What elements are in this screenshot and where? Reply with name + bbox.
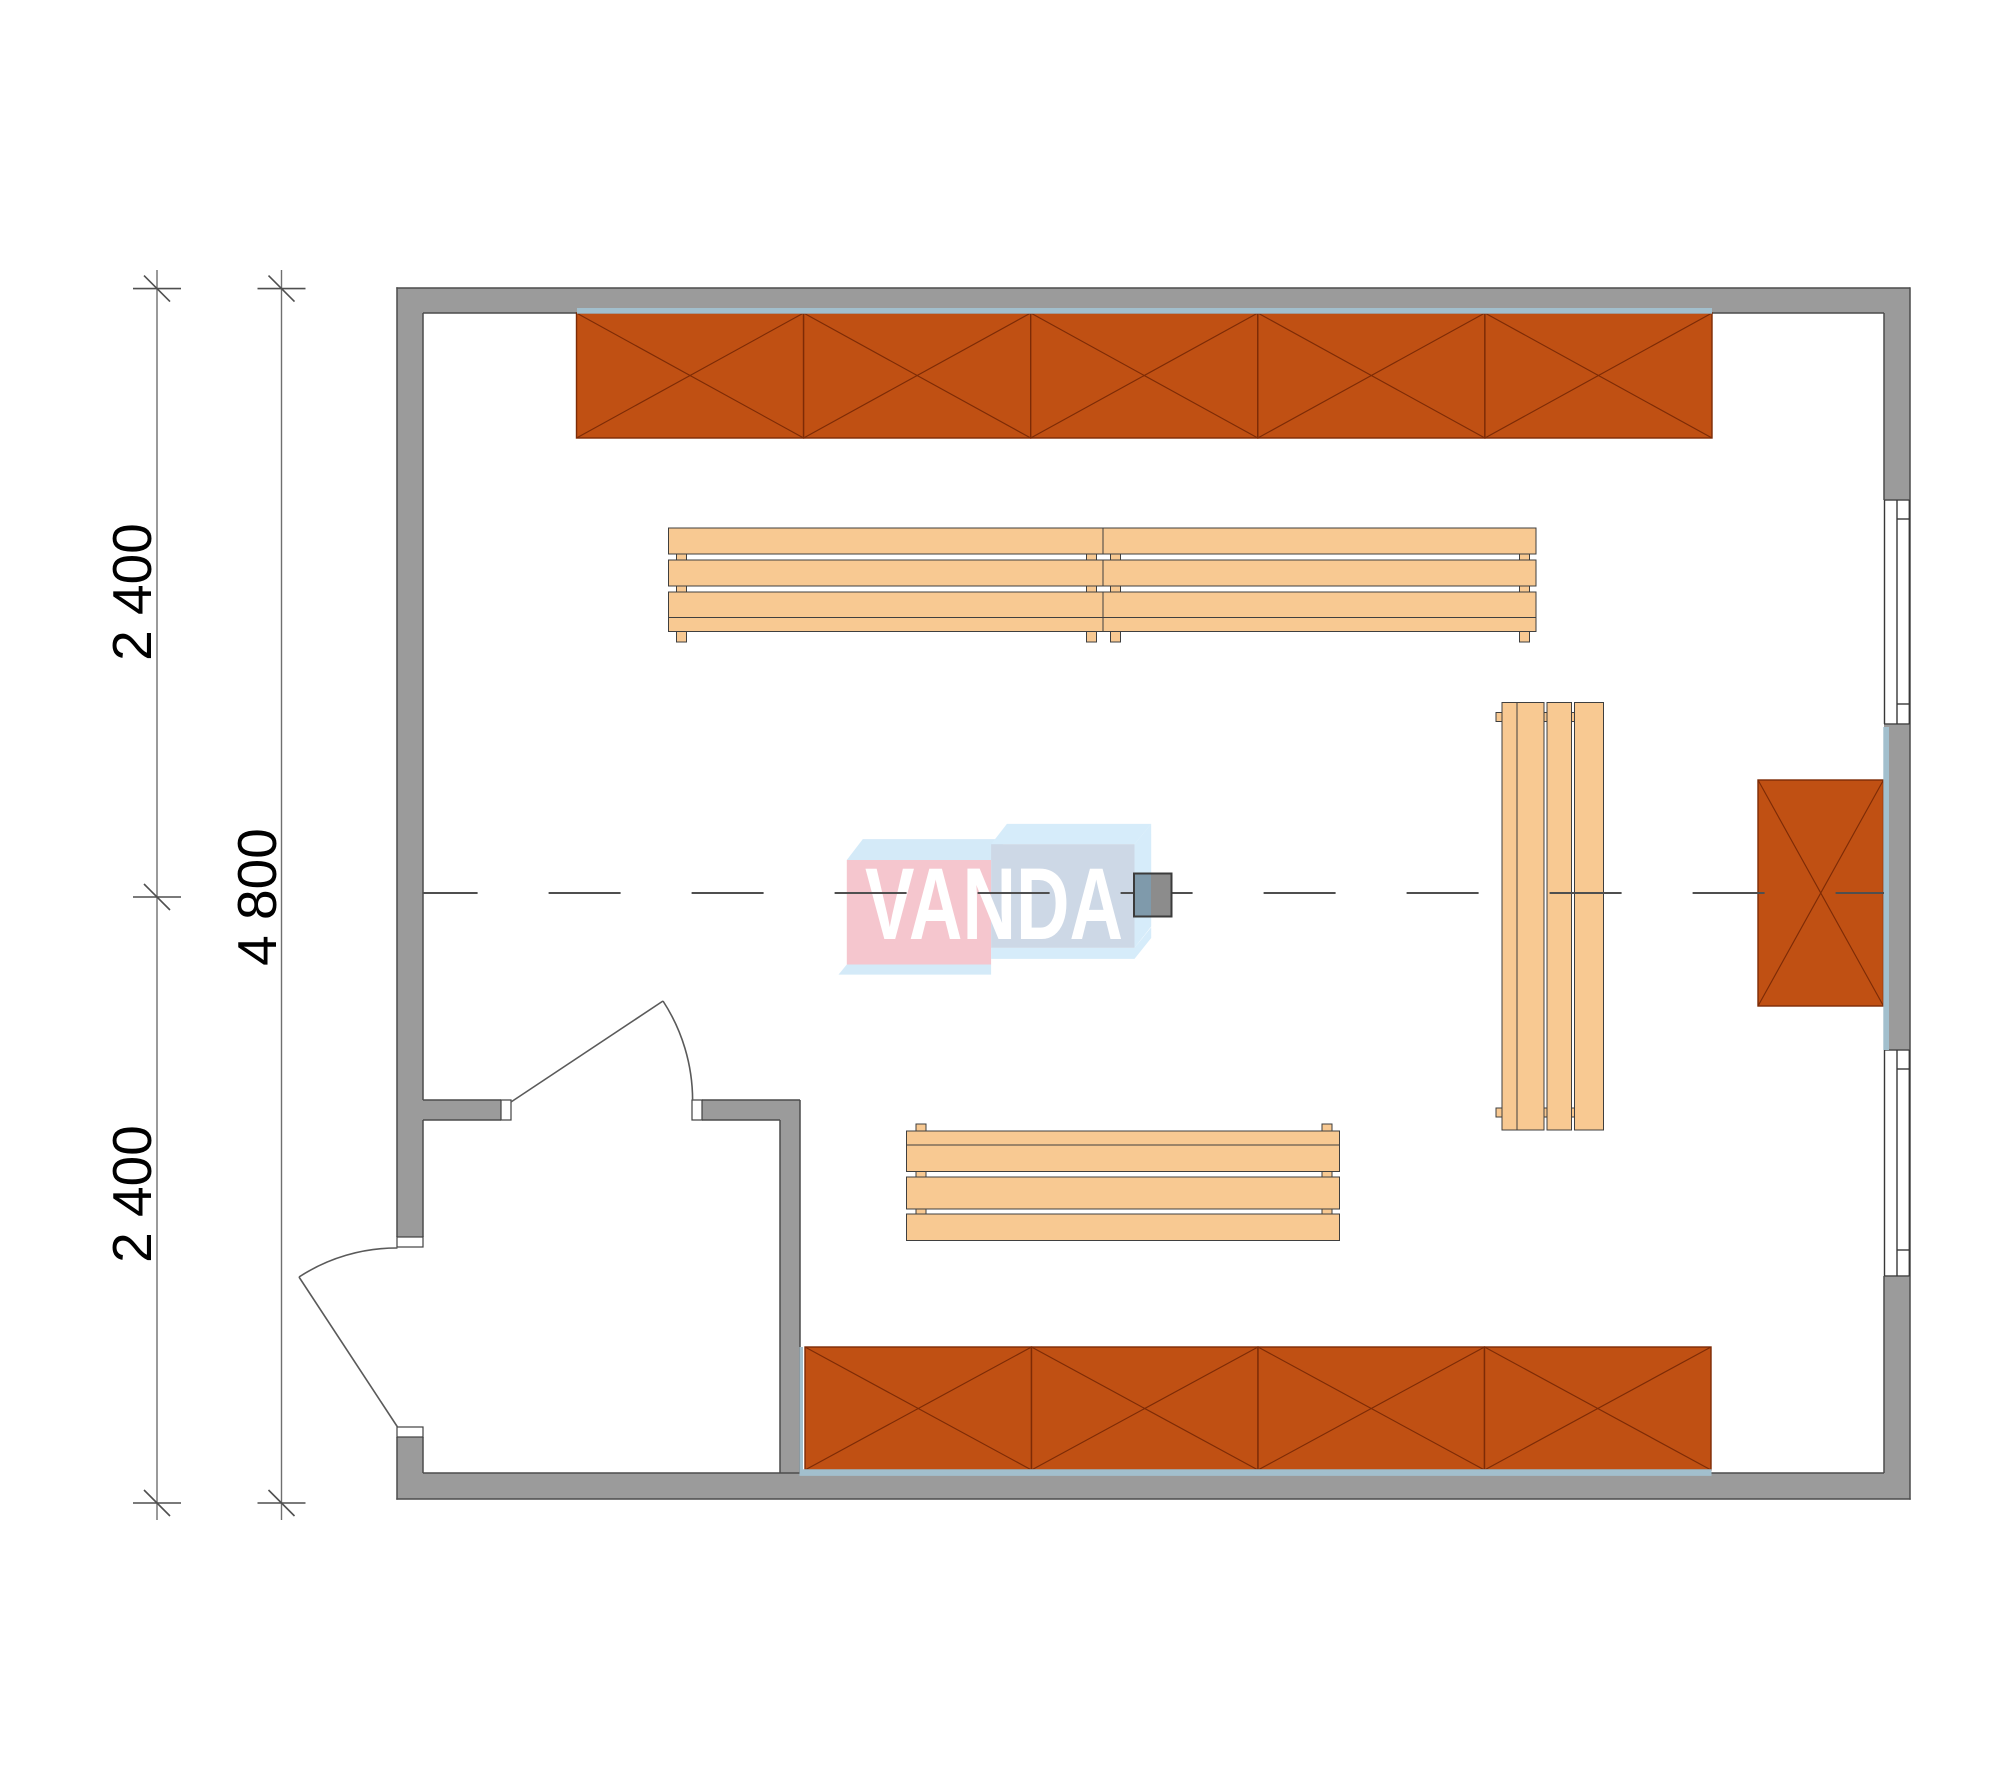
svg-text:4 800: 4 800 [226,828,288,966]
svg-text:VANDA: VANDA [865,847,1123,961]
svg-text:2 400: 2 400 [101,1125,163,1263]
svg-text:2 400: 2 400 [101,523,163,661]
